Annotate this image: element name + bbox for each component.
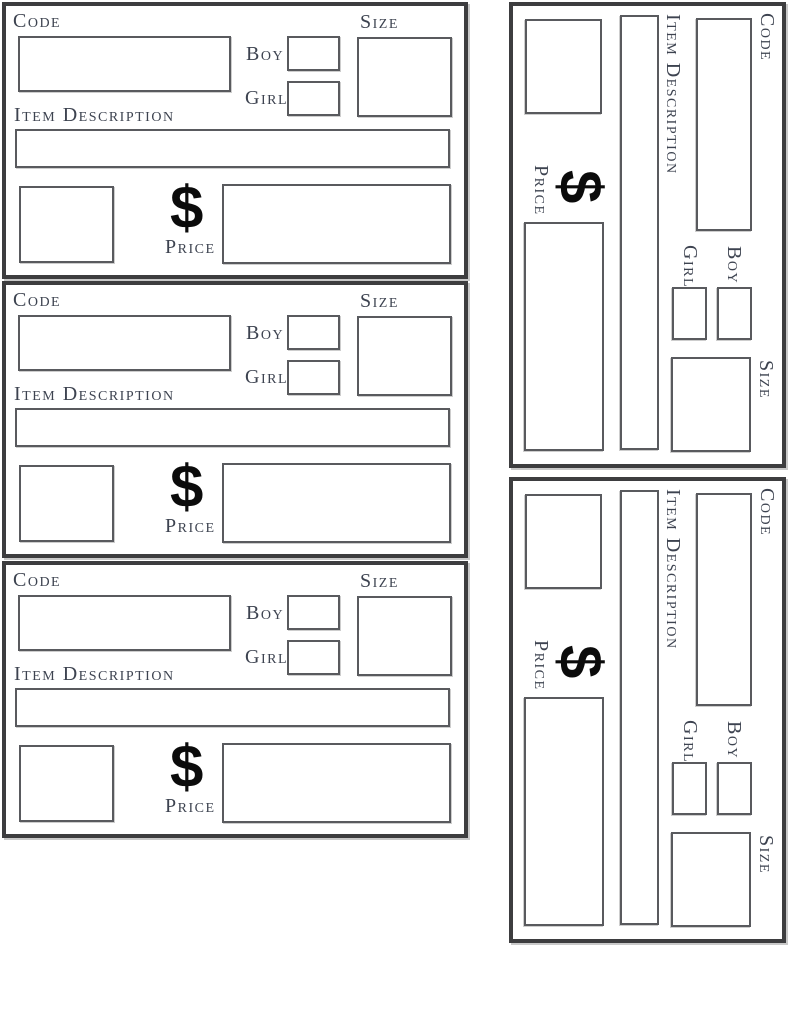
boy-label: Boy — [722, 721, 745, 759]
girl-label: Girl — [678, 720, 701, 763]
dollar-sign-icon: $ — [170, 178, 203, 238]
item-description-label: Item Description — [14, 104, 175, 127]
boy-label: Boy — [246, 602, 284, 625]
price-field — [524, 222, 604, 451]
item-description-field — [620, 15, 659, 450]
price-tag-1: Code Boy Girl Size Item Description $ Pr… — [2, 2, 468, 279]
stub-field — [525, 19, 602, 114]
price-tag-3: Code Boy Girl Size Item Description $ Pr… — [2, 561, 468, 838]
code-label: Code — [13, 289, 61, 312]
size-label: Size — [360, 290, 399, 313]
item-description-field — [15, 408, 450, 447]
price-field — [222, 184, 451, 264]
item-description-label: Item Description — [14, 663, 175, 686]
item-description-label: Item Description — [661, 489, 684, 650]
girl-label: Girl — [678, 245, 701, 288]
girl-checkbox — [287, 360, 340, 395]
price-tag-5: Code Boy Girl Size Item Description $ Pr… — [509, 477, 786, 943]
dollar-sign-icon: $ — [550, 170, 610, 203]
stub-field — [525, 494, 602, 589]
girl-checkbox — [287, 81, 340, 116]
item-description-field — [620, 490, 659, 925]
code-field — [696, 18, 752, 231]
price-label: Price — [529, 640, 552, 691]
size-field — [357, 596, 452, 676]
boy-label: Boy — [246, 322, 284, 345]
price-label: Price — [529, 165, 552, 216]
size-field — [357, 316, 452, 396]
size-field — [671, 832, 751, 927]
price-label: Price — [165, 795, 216, 818]
dollar-sign-icon: $ — [550, 645, 610, 678]
dollar-sign-icon: $ — [170, 457, 203, 517]
price-field — [222, 463, 451, 543]
size-field — [357, 37, 452, 117]
code-field — [696, 493, 752, 706]
dollar-sign-icon: $ — [170, 737, 203, 797]
item-description-label: Item Description — [14, 383, 175, 406]
price-field — [524, 697, 604, 926]
code-field — [18, 315, 231, 371]
girl-label: Girl — [245, 646, 288, 669]
price-tag-5-rotated: Code Boy Girl Size Item Description $ Pr… — [509, 477, 786, 943]
size-field — [671, 357, 751, 452]
girl-label: Girl — [245, 366, 288, 389]
boy-checkbox — [717, 287, 752, 340]
boy-checkbox — [717, 762, 752, 815]
price-tag-4: Code Boy Girl Size Item Description $ Pr… — [509, 2, 786, 468]
size-label: Size — [754, 360, 777, 399]
code-field — [18, 36, 231, 92]
item-description-field — [15, 688, 450, 727]
item-description-label: Item Description — [661, 14, 684, 175]
girl-label: Girl — [245, 87, 288, 110]
code-label: Code — [755, 13, 778, 61]
price-label: Price — [165, 236, 216, 259]
price-tag-2: Code Boy Girl Size Item Description $ Pr… — [2, 281, 468, 558]
size-label: Size — [360, 570, 399, 593]
boy-checkbox — [287, 315, 340, 350]
girl-checkbox — [672, 287, 707, 340]
boy-label: Boy — [722, 246, 745, 284]
code-label: Code — [755, 488, 778, 536]
code-label: Code — [13, 10, 61, 33]
boy-checkbox — [287, 595, 340, 630]
stub-field — [19, 745, 114, 822]
stub-field — [19, 465, 114, 542]
size-label: Size — [360, 11, 399, 34]
price-label: Price — [165, 515, 216, 538]
item-description-field — [15, 129, 450, 168]
price-tag-4-rotated: Code Boy Girl Size Item Description $ Pr… — [509, 2, 786, 468]
girl-checkbox — [672, 762, 707, 815]
size-label: Size — [754, 835, 777, 874]
tag-sheet: Code Boy Girl Size Item Description $ Pr… — [0, 0, 789, 1023]
boy-label: Boy — [246, 43, 284, 66]
girl-checkbox — [287, 640, 340, 675]
boy-checkbox — [287, 36, 340, 71]
code-field — [18, 595, 231, 651]
stub-field — [19, 186, 114, 263]
code-label: Code — [13, 569, 61, 592]
price-field — [222, 743, 451, 823]
